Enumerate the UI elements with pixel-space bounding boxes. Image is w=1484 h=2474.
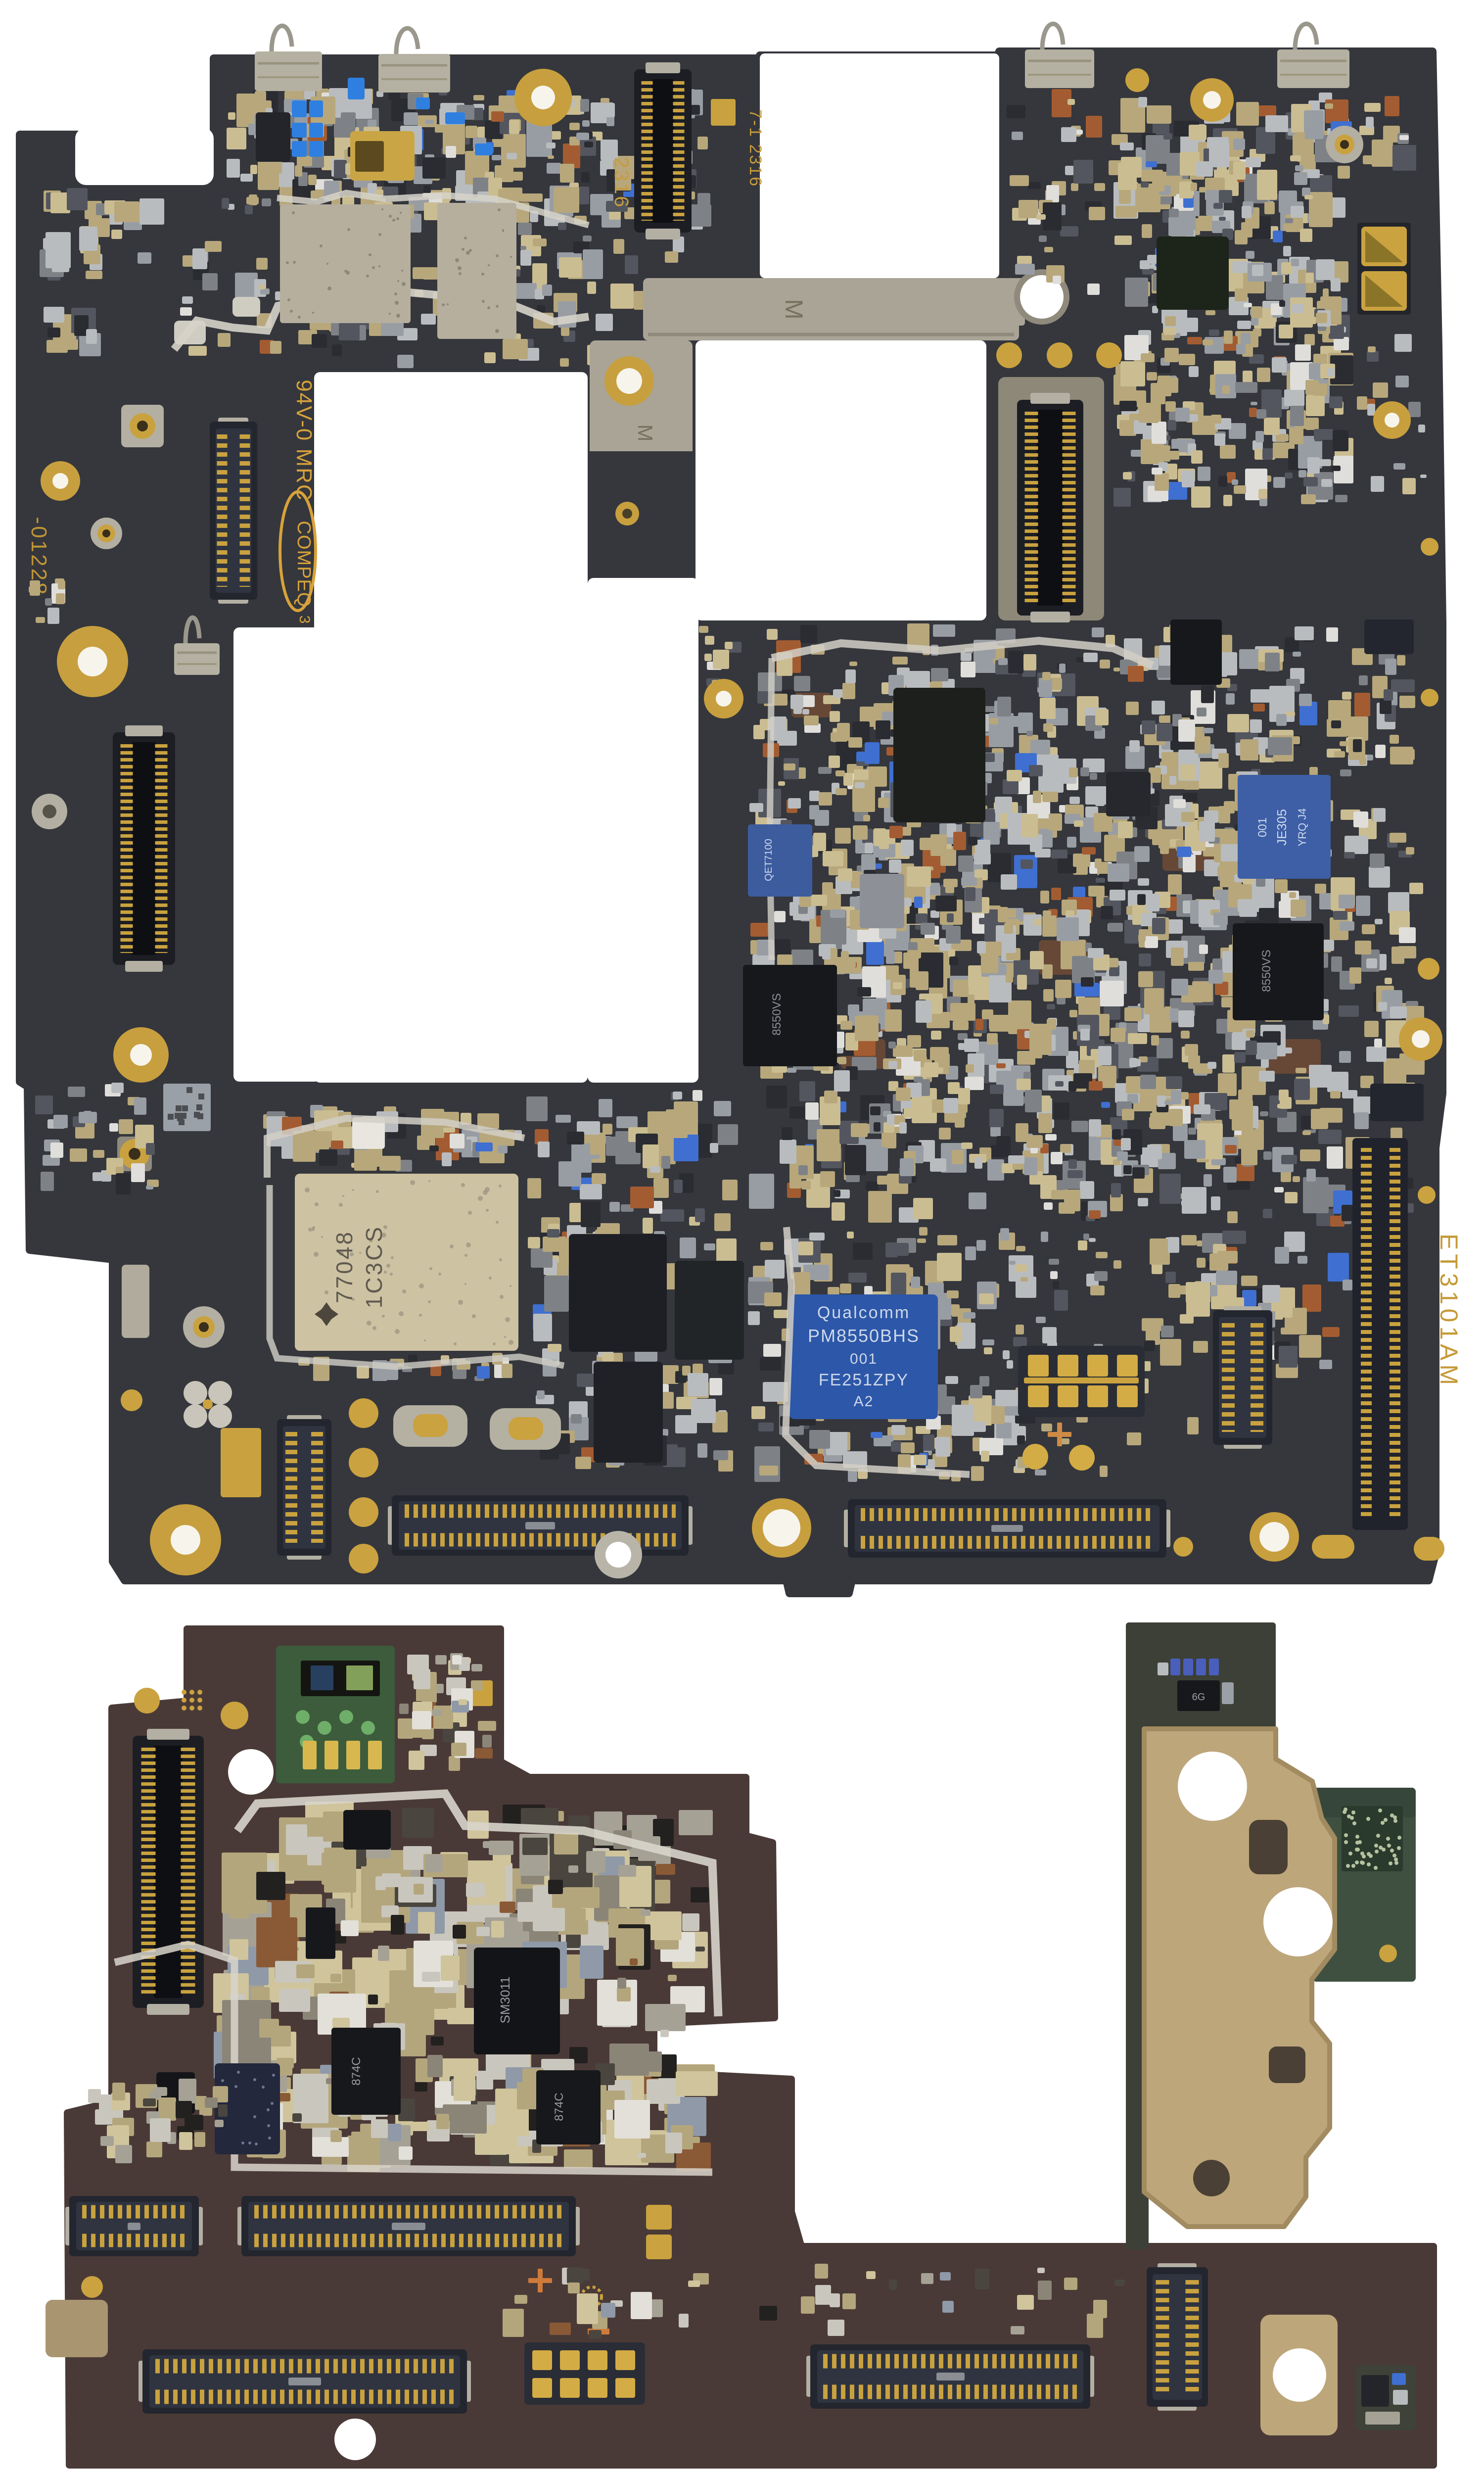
svg-text:3: 3	[296, 616, 313, 624]
svg-text:8550VS: 8550VS	[1260, 950, 1273, 992]
svg-text:001: 001	[850, 1351, 878, 1367]
svg-text:SM3011: SM3011	[498, 1977, 512, 2024]
svg-text:FE251ZPY: FE251ZPY	[819, 1371, 909, 1389]
svg-text:8550VS: 8550VS	[770, 993, 784, 1035]
svg-text:JE305: JE305	[1274, 809, 1289, 846]
svg-text:874C: 874C	[350, 2057, 363, 2085]
svg-text:QET7100: QET7100	[763, 839, 774, 881]
svg-text:77048: 77048	[331, 1230, 357, 1303]
svg-text:A2: A2	[854, 1393, 874, 1410]
svg-text:874C: 874C	[553, 2093, 566, 2121]
svg-text:M: M	[634, 425, 657, 442]
svg-text:YRQ J4: YRQ J4	[1296, 808, 1308, 846]
svg-text:1C3CS: 1C3CS	[361, 1225, 387, 1308]
svg-text:Qualcomm: Qualcomm	[817, 1303, 910, 1322]
svg-text:PM8550BHS: PM8550BHS	[808, 1326, 920, 1346]
svg-text:M: M	[780, 299, 808, 320]
svg-text:ET3101AM: ET3101AM	[1435, 1234, 1463, 1389]
svg-text:7-1 2316: 7-1 2316	[746, 109, 765, 188]
svg-text:94V-0 MRC: 94V-0 MRC	[292, 380, 316, 501]
svg-text:6G: 6G	[1192, 1692, 1206, 1703]
svg-text:001: 001	[1256, 817, 1269, 837]
svg-text:2316: 2316	[610, 157, 632, 209]
